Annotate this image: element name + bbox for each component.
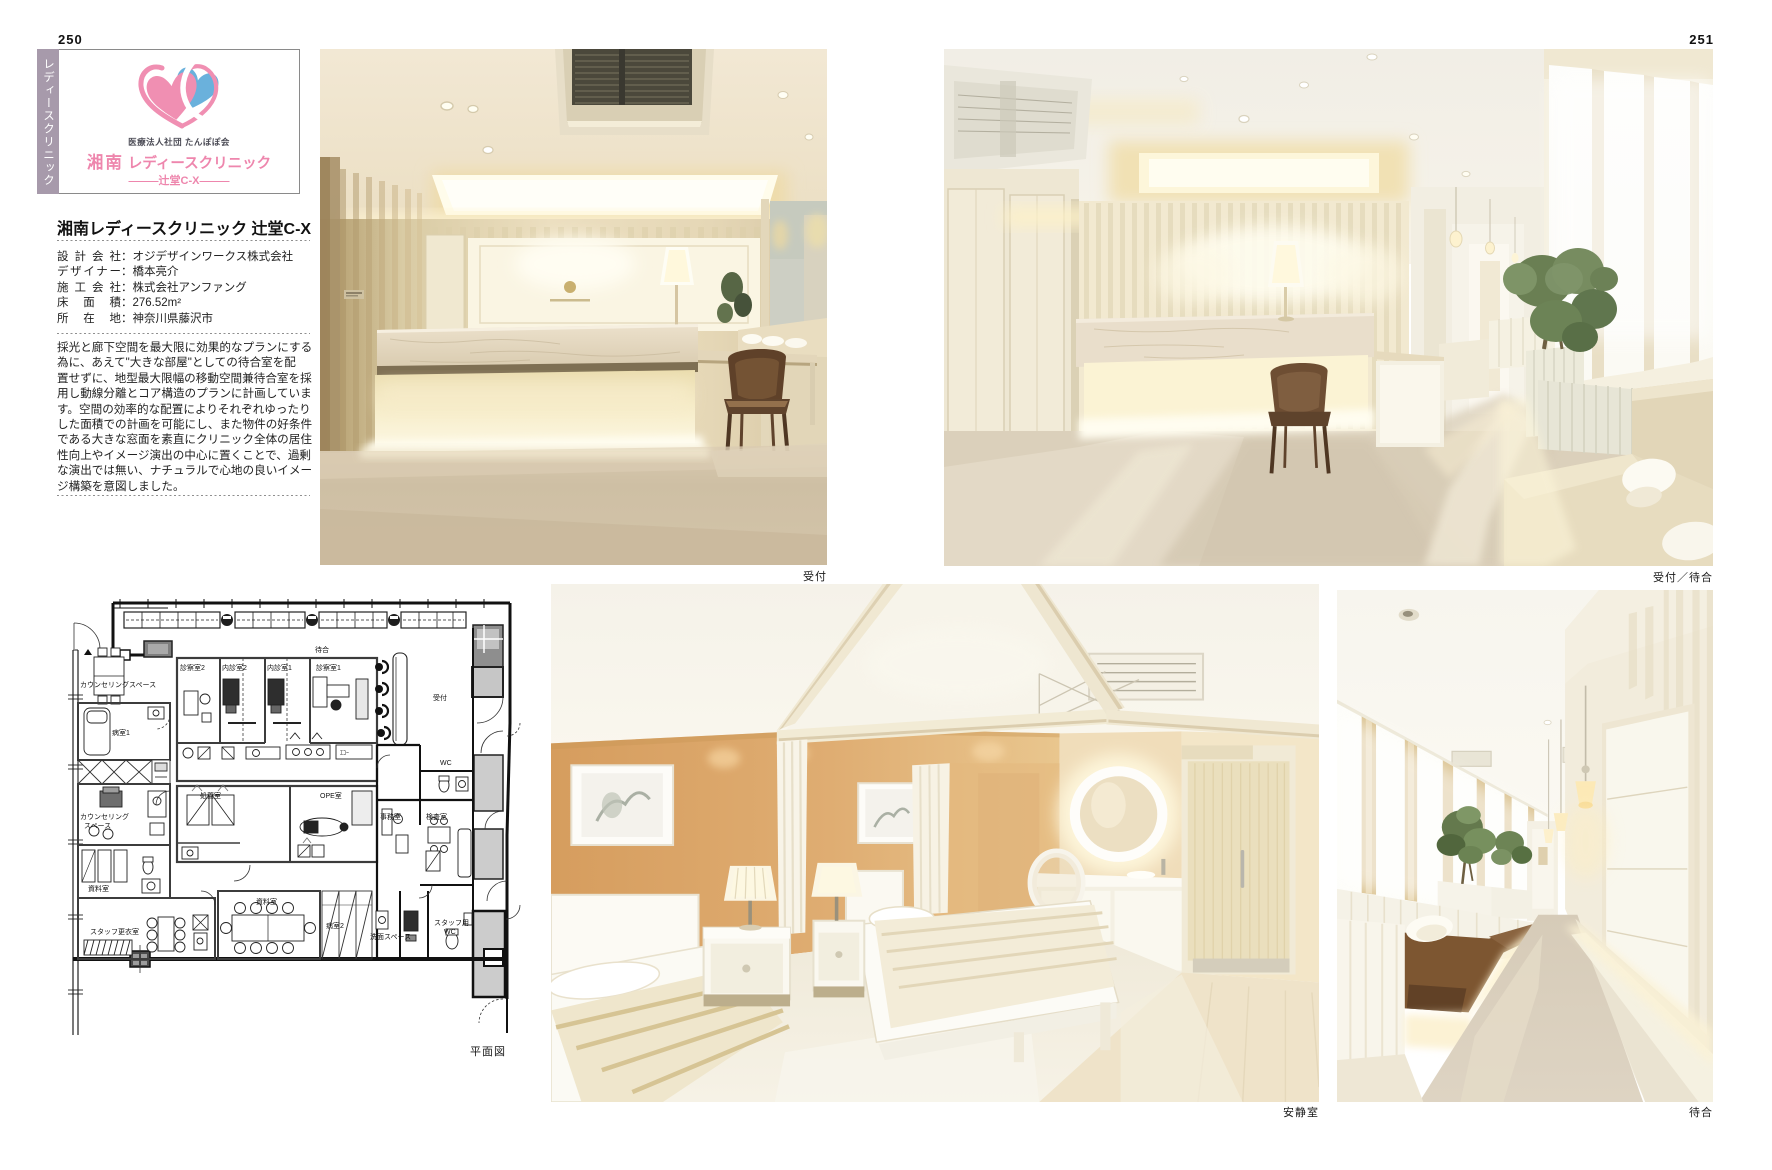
svg-text:WC: WC — [440, 760, 452, 767]
svg-text:ｴｺｰ: ｴｺｰ — [340, 750, 349, 757]
svg-text:検査室: 検査室 — [426, 812, 447, 821]
svg-text:処置室: 処置室 — [200, 791, 221, 800]
svg-text:病室1: 病室1 — [112, 728, 130, 737]
svg-text:病室2: 病室2 — [326, 921, 344, 930]
svg-text:診察室1: 診察室1 — [316, 663, 341, 672]
svg-text:カウンセリングスペース: カウンセリングスペース — [80, 680, 156, 689]
svg-text:スペース: スペース — [84, 822, 111, 830]
svg-text:WC: WC — [444, 929, 456, 936]
svg-text:内診室2: 内診室2 — [222, 663, 247, 672]
svg-text:カウンセリング: カウンセリング — [80, 812, 129, 821]
svg-text:スタッフ更衣室: スタッフ更衣室 — [90, 927, 139, 936]
svg-text:資料室: 資料室 — [88, 884, 109, 893]
svg-text:内診室1: 内診室1 — [267, 663, 292, 672]
svg-text:OPE室: OPE室 — [320, 791, 342, 800]
svg-text:待合: 待合 — [315, 645, 329, 654]
svg-text:洗面スペース: 洗面スペース — [370, 932, 411, 941]
svg-text:資料室: 資料室 — [256, 897, 277, 906]
svg-text:事務室: 事務室 — [380, 812, 401, 821]
svg-text:スタッフ用: スタッフ用 — [434, 918, 469, 927]
svg-text:受付: 受付 — [433, 693, 447, 702]
svg-text:診察室2: 診察室2 — [180, 663, 205, 672]
